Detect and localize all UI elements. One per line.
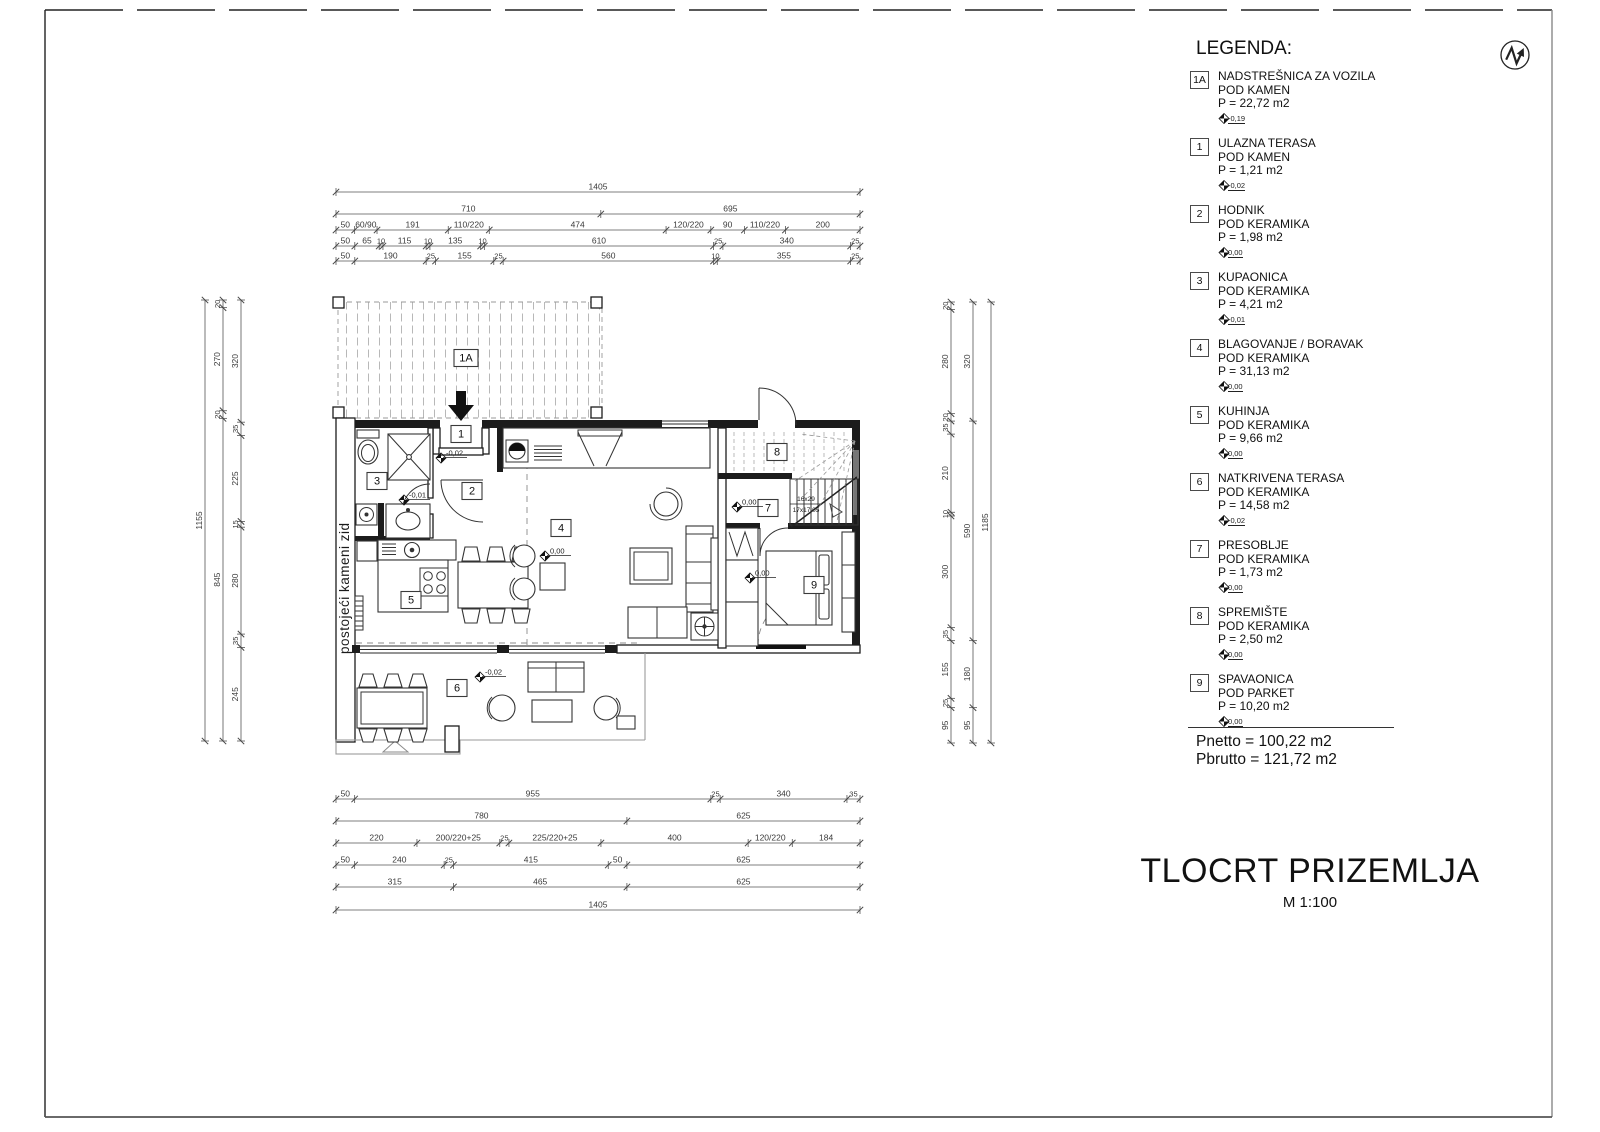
legend-separator bbox=[1188, 727, 1394, 728]
legend-entry-lines: NADSTREŠNICA ZA VOZILAPOD KAMENP = 22,72… bbox=[1218, 70, 1375, 124]
svg-text:10: 10 bbox=[377, 237, 385, 246]
elevation-marker: 0,00 bbox=[540, 547, 571, 562]
svg-text:50: 50 bbox=[341, 251, 351, 261]
side-table bbox=[617, 716, 635, 729]
outdoor-sofa bbox=[528, 662, 584, 692]
dimensions: 1405 710695 5060/90191110/220474120/2209… bbox=[194, 182, 995, 915]
armchair bbox=[513, 578, 535, 600]
toilet bbox=[357, 430, 379, 464]
terrace-dining-set bbox=[357, 674, 427, 742]
svg-text:1A: 1A bbox=[459, 353, 473, 365]
legend-entry-1: 1ULAZNA TERASAPOD KAMENP = 1,21 m2-0,02 bbox=[1190, 137, 1450, 204]
dim-row: 1405 bbox=[333, 182, 863, 197]
legend-room-elevation: 0,00 bbox=[1218, 246, 1309, 258]
exterior-door bbox=[759, 388, 796, 425]
north-arrow-icon bbox=[1501, 41, 1529, 69]
svg-text:1: 1 bbox=[458, 429, 464, 441]
chair bbox=[462, 547, 480, 561]
legend-entry-lines: SPAVAONICAPOD PARKETP = 10,20 m20,00 bbox=[1218, 673, 1294, 727]
outdoor-table bbox=[532, 700, 572, 722]
svg-text:190: 190 bbox=[383, 251, 397, 261]
svg-text:280: 280 bbox=[230, 573, 240, 587]
svg-text:35: 35 bbox=[941, 423, 950, 431]
armchair bbox=[513, 545, 535, 567]
legend-room-elevation: 0,00 bbox=[1218, 581, 1309, 593]
legend-entry-7: 7PRESOBLJEPOD KERAMIKAP = 1,73 m20,00 bbox=[1190, 539, 1450, 606]
legend-room-name: PRESOBLJE bbox=[1218, 539, 1309, 553]
svg-text:10: 10 bbox=[711, 252, 719, 261]
step-arrow bbox=[383, 741, 408, 752]
chair bbox=[487, 609, 505, 623]
legend-room-area: P = 9,66 m2 bbox=[1218, 432, 1309, 446]
legend-room-name: NATKRIVENA TERASA bbox=[1218, 472, 1344, 486]
svg-text:955: 955 bbox=[526, 789, 540, 799]
svg-text:90: 90 bbox=[723, 220, 733, 230]
svg-text:20: 20 bbox=[213, 410, 222, 418]
chair bbox=[462, 609, 480, 623]
legend-room-floor: POD KERAMIKA bbox=[1218, 553, 1309, 567]
dim-row: 5060/90191110/220474120/22090110/220200 bbox=[333, 220, 863, 235]
plant bbox=[691, 613, 718, 640]
terrace-pier bbox=[445, 726, 459, 752]
svg-text:50: 50 bbox=[341, 220, 351, 230]
legend-room-area: P = 1,73 m2 bbox=[1218, 566, 1309, 580]
legend-room-area: P = 4,21 m2 bbox=[1218, 298, 1309, 312]
legend-room-floor: POD KERAMIKA bbox=[1218, 218, 1309, 232]
legend-room-name: ULAZNA TERASA bbox=[1218, 137, 1316, 151]
dim-row: 50651011510135106102534025 bbox=[333, 236, 863, 251]
legend-room-floor: POD KAMEN bbox=[1218, 151, 1316, 165]
sheet-title: TLOCRT PRIZEMLJA bbox=[1100, 852, 1520, 891]
svg-text:184: 184 bbox=[819, 833, 833, 843]
legend-room-area: P = 14,58 m2 bbox=[1218, 499, 1344, 513]
sheet-scale: M 1:100 bbox=[1100, 894, 1520, 911]
legend-room-elevation: 0,00 bbox=[1218, 715, 1294, 727]
legend-entry-lines: NATKRIVENA TERASAPOD KERAMIKAP = 14,58 m… bbox=[1218, 472, 1344, 526]
legend-room-number: 2 bbox=[1190, 205, 1209, 223]
legend-room-name: HODNIK bbox=[1218, 204, 1309, 218]
svg-text:155: 155 bbox=[940, 662, 950, 676]
svg-text:25: 25 bbox=[941, 699, 950, 707]
svg-text:200/220+25: 200/220+25 bbox=[436, 833, 481, 843]
closet bbox=[842, 532, 855, 632]
svg-text:-0,01: -0,01 bbox=[409, 491, 426, 500]
svg-text:695: 695 bbox=[723, 204, 737, 214]
svg-text:710: 710 bbox=[461, 204, 475, 214]
total-net-area: Pnetto = 100,22 m2 bbox=[1196, 733, 1337, 751]
bath-sink bbox=[386, 504, 430, 538]
dim-row: 315465625 bbox=[333, 877, 863, 892]
svg-text:200: 200 bbox=[816, 220, 830, 230]
legend-room-area: P = 10,20 m2 bbox=[1218, 700, 1294, 714]
svg-text:35: 35 bbox=[231, 425, 240, 433]
legend-room-floor: POD PARKET bbox=[1218, 687, 1294, 701]
legend-room-number: 1 bbox=[1190, 138, 1209, 156]
svg-text:155: 155 bbox=[458, 251, 472, 261]
legend-room-area: P = 1,98 m2 bbox=[1218, 231, 1309, 245]
legend-entry-8: 8SPREMIŠTEPOD KERAMIKAP = 2,50 m20,00 bbox=[1190, 606, 1450, 673]
dim-row: 32059018095 bbox=[962, 299, 977, 746]
lounge-chair bbox=[487, 695, 515, 721]
dim-row: 2027020845 bbox=[212, 297, 227, 744]
svg-text:25: 25 bbox=[851, 237, 859, 246]
svg-text:25: 25 bbox=[427, 252, 435, 261]
legend-room-floor: POD KERAMIKA bbox=[1218, 352, 1363, 366]
dim-row: 5019025155255601035525 bbox=[333, 251, 863, 266]
svg-text:135: 135 bbox=[448, 236, 462, 246]
legend-room-elevation: 0,00 bbox=[1218, 447, 1309, 459]
svg-text:6: 6 bbox=[454, 683, 460, 695]
window bbox=[662, 421, 708, 428]
svg-text:415: 415 bbox=[524, 855, 538, 865]
svg-text:610: 610 bbox=[592, 236, 606, 246]
svg-text:560: 560 bbox=[601, 251, 615, 261]
svg-text:625: 625 bbox=[736, 877, 750, 887]
dim-row: 1155 bbox=[194, 297, 209, 744]
svg-text:340: 340 bbox=[780, 236, 794, 246]
svg-text:8: 8 bbox=[774, 447, 780, 459]
dim-row: 320352251528035245 bbox=[230, 297, 245, 744]
svg-text:9: 9 bbox=[811, 580, 817, 592]
svg-text:95: 95 bbox=[940, 720, 950, 730]
carport-post bbox=[333, 297, 344, 308]
storage-under-stairs bbox=[734, 432, 844, 471]
drawing-sheet: 1405 710695 5060/90191110/220474120/2209… bbox=[0, 0, 1600, 1132]
legend-room-number: 6 bbox=[1190, 473, 1209, 491]
room-label-8: 8 bbox=[767, 444, 787, 461]
legend-entry-lines: KUHINJAPOD KERAMIKAP = 9,66 m20,00 bbox=[1218, 405, 1309, 459]
svg-text:65: 65 bbox=[362, 236, 372, 246]
svg-text:340: 340 bbox=[776, 789, 790, 799]
svg-text:20: 20 bbox=[941, 302, 950, 310]
svg-text:780: 780 bbox=[474, 811, 488, 821]
shower bbox=[388, 434, 430, 480]
room-label-6: 6 bbox=[447, 680, 467, 697]
svg-text:400: 400 bbox=[667, 833, 681, 843]
dim-row: 710695 bbox=[333, 204, 863, 219]
glazed-wall bbox=[360, 646, 605, 653]
svg-text:845: 845 bbox=[212, 572, 222, 586]
svg-text:7: 7 bbox=[765, 503, 771, 515]
svg-text:-0,02: -0,02 bbox=[446, 449, 463, 458]
elevation-marker: -0,02 bbox=[475, 668, 506, 683]
fridge bbox=[357, 541, 377, 561]
svg-text:355: 355 bbox=[777, 251, 791, 261]
legend-entry-6: 6NATKRIVENA TERASAPOD KERAMIKAP = 14,58 … bbox=[1190, 472, 1450, 539]
svg-text:320: 320 bbox=[230, 354, 240, 368]
svg-text:50: 50 bbox=[613, 855, 623, 865]
svg-text:1405: 1405 bbox=[589, 900, 608, 910]
svg-text:50: 50 bbox=[341, 789, 351, 799]
svg-text:191: 191 bbox=[406, 220, 420, 230]
svg-text:280: 280 bbox=[940, 354, 950, 368]
svg-text:35: 35 bbox=[231, 637, 240, 645]
svg-text:25: 25 bbox=[851, 252, 859, 261]
svg-text:0,00: 0,00 bbox=[550, 547, 565, 556]
svg-text:2: 2 bbox=[469, 486, 475, 498]
svg-text:300: 300 bbox=[940, 564, 950, 578]
svg-text:16x29: 16x29 bbox=[797, 496, 815, 503]
svg-text:245: 245 bbox=[230, 687, 240, 701]
room-label-1A: 1A bbox=[454, 350, 478, 367]
legend-room-area: P = 22,72 m2 bbox=[1218, 97, 1375, 111]
kitchen-counter-top bbox=[503, 428, 710, 468]
svg-text:25: 25 bbox=[494, 252, 502, 261]
svg-text:4: 4 bbox=[558, 523, 564, 535]
svg-text:25: 25 bbox=[714, 237, 722, 246]
chair bbox=[487, 547, 505, 561]
svg-text:210: 210 bbox=[940, 466, 950, 480]
carport-post bbox=[591, 297, 602, 308]
legend-entry-4: 4BLAGOVANJE / BORAVAKPOD KERAMIKAP = 31,… bbox=[1190, 338, 1450, 405]
legend-totals: Pnetto = 100,22 m2 Pbrutto = 121,72 m2 bbox=[1196, 733, 1337, 769]
legend-room-number: 8 bbox=[1190, 607, 1209, 625]
svg-text:465: 465 bbox=[533, 877, 547, 887]
legend-entry-5: 5KUHINJAPOD KERAMIKAP = 9,66 m20,00 bbox=[1190, 405, 1450, 472]
svg-text:225/220+25: 225/220+25 bbox=[532, 833, 577, 843]
svg-text:5: 5 bbox=[408, 595, 414, 607]
legend-room-floor: POD KERAMIKA bbox=[1218, 419, 1309, 433]
svg-text:625: 625 bbox=[736, 855, 750, 865]
legend-room-floor: POD KERAMIKA bbox=[1218, 620, 1309, 634]
stair-note: 16x29 17x17,05 bbox=[790, 496, 822, 514]
legend-room-number: 1A bbox=[1190, 71, 1209, 89]
legend-room-elevation: -0,01 bbox=[1218, 313, 1309, 325]
legend-room-elevation: 0,00 bbox=[1218, 648, 1309, 660]
svg-text:35: 35 bbox=[941, 630, 950, 638]
svg-text:20: 20 bbox=[213, 300, 222, 308]
total-gross-area: Pbrutto = 121,72 m2 bbox=[1196, 751, 1337, 769]
svg-text:1155: 1155 bbox=[194, 511, 204, 530]
bench-sofa bbox=[628, 607, 687, 638]
armchair bbox=[654, 492, 678, 516]
svg-text:120/220: 120/220 bbox=[755, 833, 786, 843]
svg-text:0,00: 0,00 bbox=[742, 498, 757, 507]
legend-room-area: P = 1,21 m2 bbox=[1218, 164, 1316, 178]
room-label-4: 4 bbox=[551, 520, 571, 537]
radiator bbox=[355, 596, 363, 630]
svg-text:50: 50 bbox=[341, 855, 351, 865]
side-table bbox=[540, 563, 565, 590]
svg-text:17x17,05: 17x17,05 bbox=[793, 507, 820, 514]
svg-text:20: 20 bbox=[941, 413, 950, 421]
svg-text:35: 35 bbox=[849, 790, 857, 799]
room-label-5: 5 bbox=[401, 592, 421, 609]
dim-row: 1405 bbox=[333, 900, 863, 915]
legend-entry-3: 3KUPAONICAPOD KERAMIKAP = 4,21 m2-0,01 bbox=[1190, 271, 1450, 338]
dim-row: 502402541550625 bbox=[333, 855, 863, 870]
svg-text:225: 225 bbox=[230, 471, 240, 485]
room-label-9: 9 bbox=[804, 577, 824, 594]
room-label-1: 1 bbox=[451, 426, 471, 443]
svg-text:270: 270 bbox=[212, 352, 222, 366]
washing-machine bbox=[356, 504, 377, 525]
svg-text:25: 25 bbox=[500, 834, 508, 843]
svg-text:25: 25 bbox=[711, 790, 719, 799]
legend-room-number: 9 bbox=[1190, 674, 1209, 692]
svg-text:120/220: 120/220 bbox=[673, 220, 704, 230]
legend-entry-lines: BLAGOVANJE / BORAVAKPOD KERAMIKAP = 31,1… bbox=[1218, 338, 1363, 392]
svg-text:625: 625 bbox=[736, 811, 750, 821]
svg-text:315: 315 bbox=[388, 877, 402, 887]
svg-text:50: 50 bbox=[341, 236, 351, 246]
legend-entry-lines: ULAZNA TERASAPOD KAMENP = 1,21 m2-0,02 bbox=[1218, 137, 1316, 191]
legend-room-number: 3 bbox=[1190, 272, 1209, 290]
legend-room-elevation: -0,19 bbox=[1218, 112, 1375, 124]
legend-heading: LEGENDA: bbox=[1196, 38, 1292, 60]
legend-room-name: BLAGOVANJE / BORAVAK bbox=[1218, 338, 1363, 352]
svg-text:0,00: 0,00 bbox=[755, 569, 770, 578]
svg-text:95: 95 bbox=[962, 720, 972, 730]
sliding-door bbox=[756, 645, 806, 649]
legend-entry-lines: HODNIKPOD KERAMIKAP = 1,98 m20,00 bbox=[1218, 204, 1309, 258]
svg-text:590: 590 bbox=[962, 524, 972, 538]
carport-post bbox=[591, 407, 602, 418]
room-label-2: 2 bbox=[462, 483, 482, 500]
tv-board bbox=[711, 538, 718, 610]
svg-text:-0,02: -0,02 bbox=[485, 668, 502, 677]
wardrobe bbox=[726, 528, 758, 646]
legend-room-floor: POD KERAMIKA bbox=[1218, 486, 1344, 500]
coffee-table bbox=[630, 548, 672, 584]
room-label-3: 3 bbox=[367, 473, 387, 490]
legend-room-elevation: -0,02 bbox=[1218, 514, 1344, 526]
sofa bbox=[686, 526, 713, 612]
title-block: TLOCRT PRIZEMLJA M 1:100 bbox=[1100, 852, 1520, 911]
carport-post bbox=[333, 407, 344, 418]
legend-room-floor: POD KERAMIKA bbox=[1218, 285, 1309, 299]
stone-wall-note: postojeći kameni zid bbox=[337, 522, 352, 654]
legend-room-name: NADSTREŠNICA ZA VOZILA bbox=[1218, 70, 1375, 84]
legend-room-number: 7 bbox=[1190, 540, 1209, 558]
legend-room-name: SPREMIŠTE bbox=[1218, 606, 1309, 620]
svg-text:110/220: 110/220 bbox=[750, 220, 780, 230]
svg-text:240: 240 bbox=[392, 855, 406, 865]
dim-row: 780625 bbox=[333, 811, 863, 826]
legend-room-elevation: 0,00 bbox=[1218, 380, 1363, 392]
dim-row: 20280203521010300351552595 bbox=[940, 299, 955, 746]
svg-text:3: 3 bbox=[374, 476, 380, 488]
svg-text:180: 180 bbox=[962, 667, 972, 681]
svg-text:60/90: 60/90 bbox=[355, 220, 377, 230]
legend-room-name: KUHINJA bbox=[1218, 405, 1309, 419]
legend-entry-2: 2HODNIKPOD KERAMIKAP = 1,98 m20,00 bbox=[1190, 204, 1450, 271]
legend-room-name: SPAVAONICA bbox=[1218, 673, 1294, 687]
legend-entry-1A: 1ANADSTREŠNICA ZA VOZILAPOD KAMENP = 22,… bbox=[1190, 70, 1450, 137]
room-label-7: 7 bbox=[758, 500, 778, 517]
dim-row: 220200/220+2525225/220+25400120/220184 bbox=[333, 833, 863, 848]
svg-text:115: 115 bbox=[398, 236, 412, 246]
svg-text:10: 10 bbox=[478, 237, 486, 246]
legend-entries: 1ANADSTREŠNICA ZA VOZILAPOD KAMENP = 22,… bbox=[1190, 70, 1450, 740]
legend-room-name: KUPAONICA bbox=[1218, 271, 1309, 285]
svg-text:1185: 1185 bbox=[980, 513, 990, 532]
svg-text:320: 320 bbox=[962, 354, 972, 368]
svg-text:1405: 1405 bbox=[589, 182, 608, 192]
legend-room-area: P = 31,13 m2 bbox=[1218, 365, 1363, 379]
dim-row: 509552534035 bbox=[333, 789, 863, 804]
legend-room-elevation: -0,02 bbox=[1218, 179, 1316, 191]
legend-entry-lines: PRESOBLJEPOD KERAMIKAP = 1,73 m20,00 bbox=[1218, 539, 1309, 593]
legend-room-floor: POD KAMEN bbox=[1218, 84, 1375, 98]
svg-text:15: 15 bbox=[231, 520, 240, 528]
dim-row: 1185 bbox=[980, 299, 995, 746]
svg-text:110/220: 110/220 bbox=[454, 220, 484, 230]
svg-text:474: 474 bbox=[571, 220, 585, 230]
legend-room-number: 4 bbox=[1190, 339, 1209, 357]
svg-text:220: 220 bbox=[369, 833, 383, 843]
legend-room-area: P = 2,50 m2 bbox=[1218, 633, 1309, 647]
chair bbox=[512, 609, 530, 623]
svg-text:25: 25 bbox=[445, 856, 453, 865]
legend-entry-lines: SPREMIŠTEPOD KERAMIKAP = 2,50 m20,00 bbox=[1218, 606, 1309, 660]
legend-room-number: 5 bbox=[1190, 406, 1209, 424]
legend-entry-lines: KUPAONICAPOD KERAMIKAP = 4,21 m2-0,01 bbox=[1218, 271, 1309, 325]
lounge-chair bbox=[594, 696, 620, 720]
living-room-set bbox=[510, 488, 718, 640]
legend-entry-9: 9SPAVAONICAPOD PARKETP = 10,20 m20,00 bbox=[1190, 673, 1450, 740]
svg-text:10: 10 bbox=[941, 510, 950, 518]
svg-text:10: 10 bbox=[424, 237, 432, 246]
